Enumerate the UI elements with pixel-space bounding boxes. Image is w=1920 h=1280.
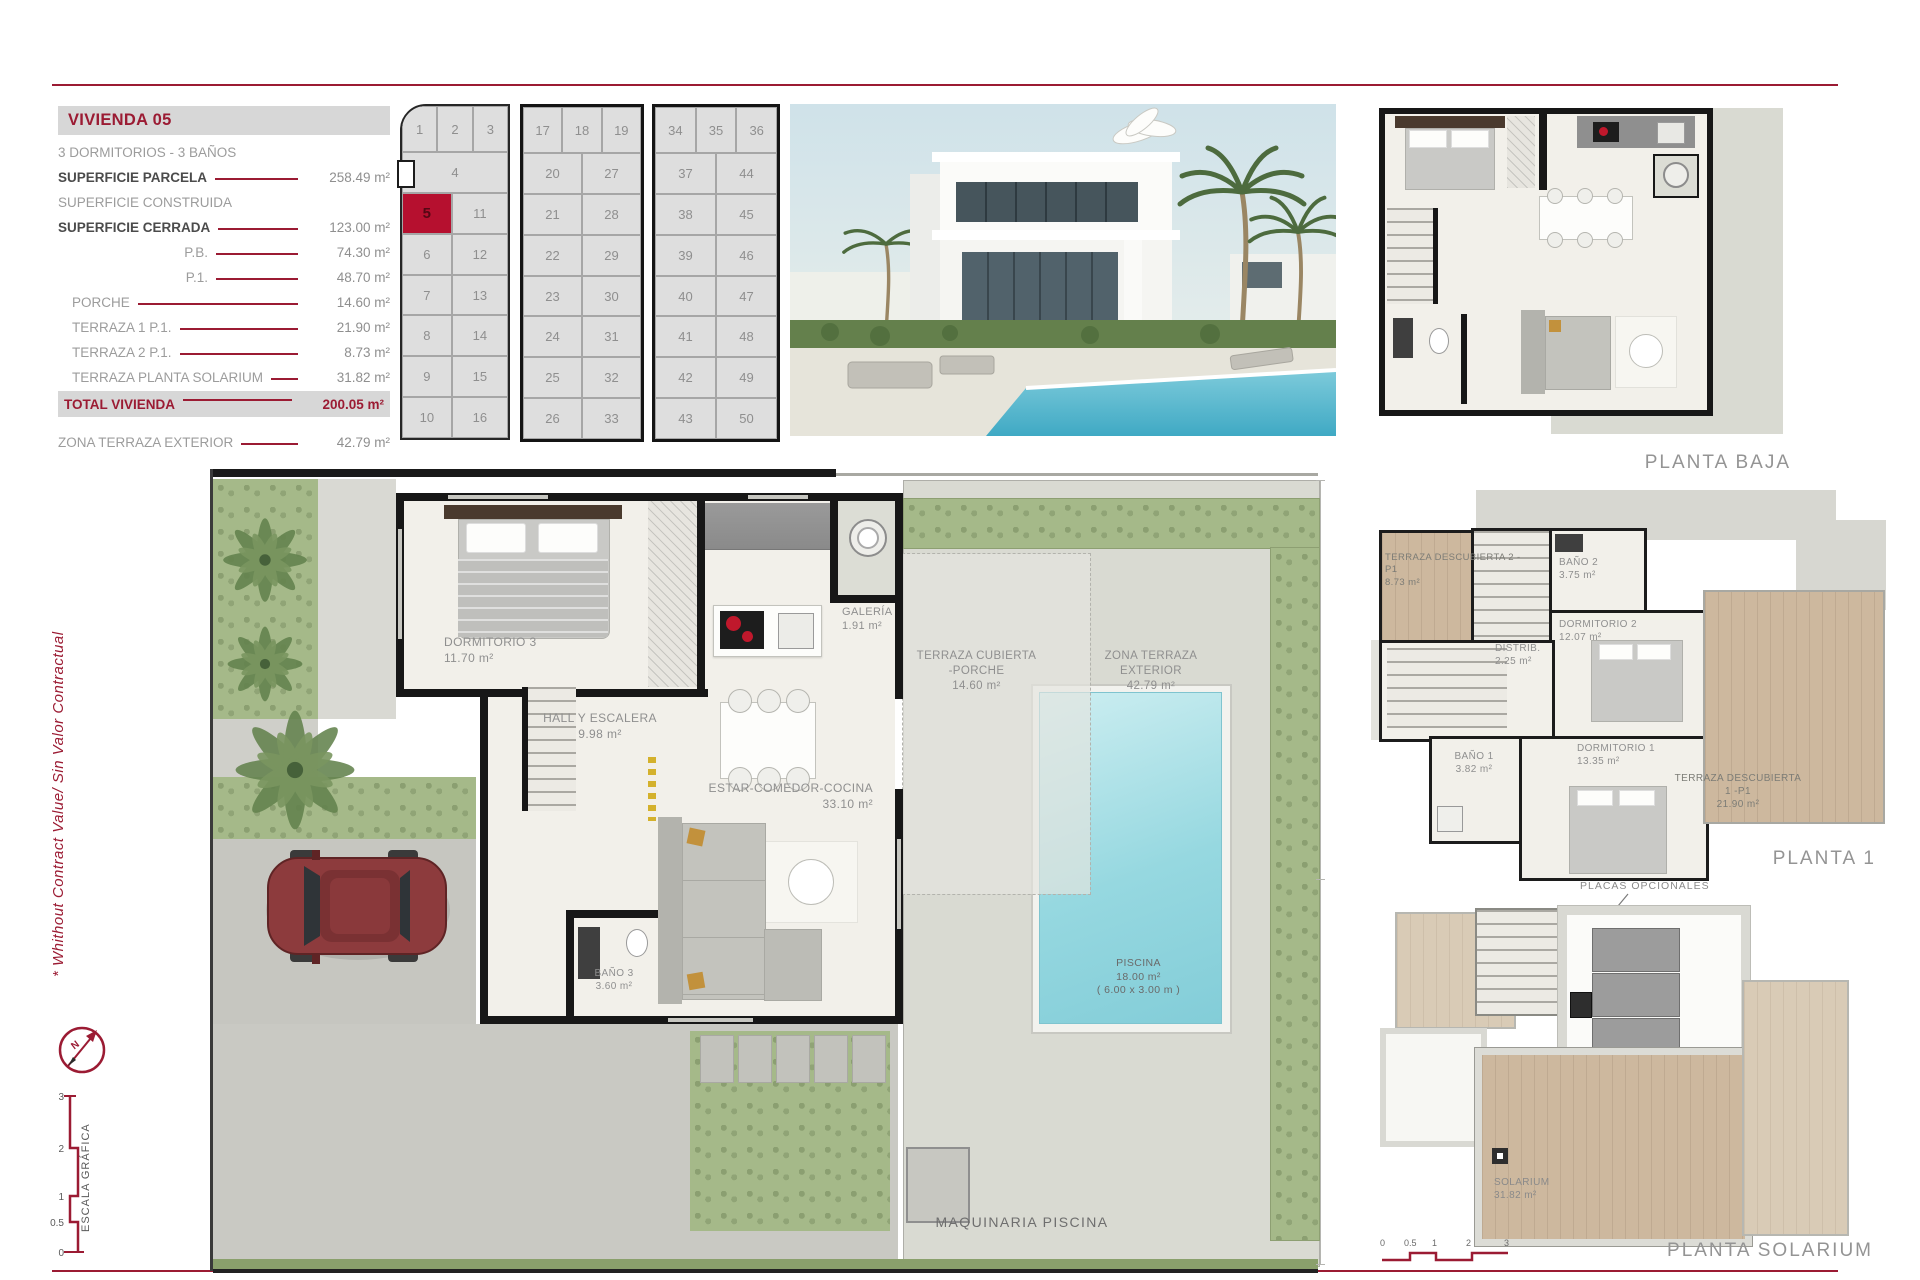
paver	[776, 1035, 810, 1083]
north-compass: N	[52, 1016, 112, 1080]
plot-47: 47	[716, 276, 777, 317]
info-row-label: PORCHE	[58, 295, 130, 310]
side-yard	[318, 479, 396, 719]
pillow	[538, 523, 598, 553]
pb-wc	[1429, 328, 1449, 354]
plot-1: 1	[402, 106, 437, 152]
wall-segment	[830, 501, 838, 599]
info-row-value: 14.60 m²	[306, 295, 390, 310]
terraza2-label: TERRAZA DESCUBIERTA 2 -P1 8.73 m²	[1385, 552, 1523, 589]
pb-coffee-table	[1629, 334, 1663, 368]
window	[897, 839, 901, 929]
sofa-pillow	[687, 972, 706, 991]
plot-17: 17	[523, 107, 562, 153]
plot-26: 26	[523, 398, 582, 439]
room-area: 3.60 m²	[576, 980, 652, 993]
info-row-value: 31.82 m²	[306, 370, 390, 385]
pb-chair	[1577, 188, 1593, 204]
hazard-strip	[648, 757, 656, 821]
hedge-top	[903, 498, 1320, 549]
info-row-label: P.B.	[58, 245, 208, 260]
chair	[728, 689, 752, 713]
plot-24: 24	[523, 316, 582, 357]
plot-30: 30	[582, 276, 641, 317]
villa-photo-art	[790, 104, 1336, 436]
mini-scale-tick: 3	[1504, 1238, 1509, 1248]
room-area: 8.73 m²	[1385, 577, 1523, 589]
washing-machine-drum	[857, 527, 879, 549]
info-row: SUPERFICIE CONSTRUIDA	[58, 186, 390, 210]
mini-scale-tick: 1	[1432, 1238, 1437, 1248]
toilet	[626, 929, 648, 957]
planta-1-label: PLANTA 1	[1773, 848, 1876, 870]
bano1-label: BAÑO 1 3.82 m²	[1439, 750, 1509, 776]
plot-13: 13	[452, 275, 508, 316]
pb-hob-burner	[1599, 127, 1608, 136]
dimension-tick	[1316, 480, 1325, 481]
plot-23: 23	[523, 276, 582, 317]
wardrobe	[648, 501, 697, 687]
pb-bed-headboard	[1395, 116, 1505, 128]
plot-41: 41	[655, 316, 716, 357]
solarium-deck	[1475, 1048, 1752, 1246]
room-name: SOLARIUM	[1494, 1176, 1584, 1189]
porche-label: TERRAZA CUBIERTA -PORCHE 14.60 m²	[914, 649, 1039, 694]
room-area: 1.91 m²	[842, 619, 912, 633]
mini-scale-tick: 0	[1380, 1238, 1385, 1248]
escala-tick: 0	[58, 1248, 64, 1259]
sofa-pillow	[687, 828, 706, 847]
info-row-value: 21.90 m²	[306, 320, 390, 335]
site-block: 3435363744384539464047414842494350	[652, 104, 780, 442]
paver	[738, 1035, 772, 1083]
plot-15: 15	[452, 356, 508, 397]
mini-scale-tick: 0.5	[1404, 1238, 1417, 1248]
pb-bath-fixture	[1393, 318, 1413, 358]
escala-tick: 2	[58, 1144, 64, 1155]
pb-chair	[1607, 232, 1623, 248]
sol-roof-left	[1380, 1028, 1487, 1147]
piscina-label: PISCINA 18.00 m² ( 6.00 x 3.00 m )	[1066, 957, 1211, 998]
info-row: TERRAZA 1 P.1.21.90 m²	[58, 311, 390, 335]
coffee-table	[788, 859, 834, 905]
hall-label: HALL Y ESCALERA 9.98 m²	[536, 711, 664, 742]
porch-overlay	[903, 554, 1090, 894]
room-name: TERRAZA DESCUBIERTA 2 -P1	[1385, 552, 1523, 577]
top-rule	[52, 84, 1838, 86]
bano3-label: BAÑO 3 3.60 m²	[576, 967, 652, 993]
room-area: 14.60 m²	[914, 679, 1039, 694]
pb-sofa	[1521, 310, 1545, 394]
room-name: TERRAZA DESCUBIERTA 1 -P1	[1673, 772, 1803, 798]
wall-segment	[1461, 314, 1467, 404]
planta-1-plan: TERRAZA DESCUBIERTA 2 -P1 8.73 m² BAÑO 2…	[1371, 490, 1886, 875]
pb-wardrobe	[1507, 116, 1535, 188]
hedge-right	[1270, 547, 1320, 1241]
pb-sofa-pillow	[1549, 320, 1561, 332]
maquinaria-box	[906, 1147, 970, 1223]
room-area: 9.98 m²	[536, 727, 664, 743]
bed-headboard	[444, 505, 622, 519]
info-row-value: 48.70 m²	[306, 270, 390, 285]
info-row-value: 123.00 m²	[306, 220, 390, 235]
boundary-wall-bottom	[213, 1269, 1318, 1273]
plot-32: 32	[582, 357, 641, 398]
info-row-label: 3 DORMITORIOS - 3 BAÑOS	[58, 145, 236, 160]
hedge-bottom	[213, 1259, 1318, 1269]
room-area: 18.00 m²	[1066, 971, 1211, 985]
solar-panel	[1592, 928, 1680, 972]
boundary-wall-top	[212, 469, 836, 477]
wall-segment	[566, 910, 574, 1016]
bano2-label: BAÑO 2 3.75 m²	[1559, 556, 1629, 582]
plot-16: 16	[452, 397, 508, 438]
site-plan-grid: 1234511612713814915101617181920272128222…	[400, 104, 774, 436]
total-value: 200.05 m²	[300, 397, 384, 412]
info-row-label: SUPERFICIE CERRADA	[58, 220, 210, 235]
plot-35: 35	[696, 107, 737, 153]
window	[668, 1018, 753, 1022]
plot-34: 34	[655, 107, 696, 153]
plot-18: 18	[562, 107, 601, 153]
escala-tick: 3	[58, 1092, 64, 1103]
leader-line	[216, 253, 298, 255]
total-row: TOTAL VIVIENDA 200.05 m²	[58, 391, 390, 417]
room-name: DORMITORIO 3	[444, 635, 564, 651]
plot-38: 38	[655, 194, 716, 235]
escala-tick: 1	[58, 1192, 64, 1203]
info-row: SUPERFICIE CERRADA123.00 m²	[58, 211, 390, 235]
room-area: 42.79 m²	[1076, 679, 1226, 694]
plot-45: 45	[716, 194, 777, 235]
info-row: SUPERFICIE PARCELA258.49 m²	[58, 161, 390, 185]
plot-25: 25	[523, 357, 582, 398]
room-area: 31.82 m²	[1494, 1189, 1584, 1202]
info-row-value: 74.30 m²	[306, 245, 390, 260]
pb-chair	[1547, 188, 1563, 204]
plan-sheet: VIVIENDA 05 3 DORMITORIOS - 3 BAÑOSSUPER…	[0, 0, 1920, 1280]
dormitorio3-label: DORMITORIO 3 11.70 m²	[444, 635, 564, 666]
info-panel: VIVIENDA 05 3 DORMITORIOS - 3 BAÑOSSUPER…	[58, 106, 390, 450]
info-rows: 3 DORMITORIOS - 3 BAÑOSSUPERFICIE PARCEL…	[58, 136, 390, 385]
info-row: 3 DORMITORIOS - 3 BAÑOS	[58, 136, 390, 160]
info-row: P.1.48.70 m²	[58, 261, 390, 285]
dimension-line	[1320, 480, 1321, 1265]
leader-line	[216, 278, 298, 280]
terraza1-label: TERRAZA DESCUBIERTA 1 -P1 21.90 m²	[1673, 772, 1803, 811]
plot-43: 43	[655, 398, 716, 439]
room-name: HALL Y ESCALERA	[536, 711, 664, 727]
plot-5: 5	[402, 193, 452, 234]
info-row: PORCHE14.60 m²	[58, 286, 390, 310]
plot-21: 21	[523, 194, 582, 235]
plot-36: 36	[736, 107, 777, 153]
info-row-label: P.1.	[58, 270, 208, 285]
plot-44: 44	[716, 153, 777, 194]
sol-vent	[1570, 992, 1592, 1018]
sol-stairs	[1475, 908, 1562, 1016]
leader-line	[215, 178, 298, 180]
leader-line	[138, 303, 298, 305]
car	[260, 844, 456, 975]
villa-title: VIVIENDA 05	[58, 106, 390, 135]
room-name: ZONA TERRAZA EXTERIOR	[1076, 649, 1226, 679]
info-row: TERRAZA 2 P.1.8.73 m²	[58, 336, 390, 360]
info-row-label: TERRAZA 1 P.1.	[58, 320, 172, 335]
planta-baja-label: PLANTA BAJA	[1645, 452, 1791, 474]
room-name: BAÑO 3	[576, 967, 652, 980]
room-name: TERRAZA CUBIERTA -PORCHE	[914, 649, 1039, 679]
pillow	[466, 523, 526, 553]
total-label: TOTAL VIVIENDA	[64, 397, 175, 412]
plot-10: 10	[402, 397, 452, 438]
plot-14: 14	[452, 315, 508, 356]
room-name: ESTAR-COMEDOR-COCINA	[708, 781, 873, 797]
plot-28: 28	[582, 194, 641, 235]
palm-tree	[220, 515, 310, 605]
dorm2-label: DORMITORIO 2 12.07 m²	[1559, 618, 1663, 644]
plot-20: 20	[523, 153, 582, 194]
leader-line	[271, 378, 298, 380]
wall-segment	[480, 689, 488, 1024]
dimension-tick	[1316, 1264, 1325, 1265]
window	[448, 495, 548, 499]
plot-31: 31	[582, 316, 641, 357]
info-row-label: TERRAZA 2 P.1.	[58, 345, 172, 360]
plot-7: 7	[402, 275, 452, 316]
paver	[700, 1035, 734, 1083]
room-area: 3.82 m²	[1439, 763, 1509, 776]
info-row: P.B.74.30 m²	[58, 236, 390, 260]
solar-panel	[1592, 973, 1680, 1017]
room-name: GALERÍA	[842, 605, 912, 619]
sofa-chaise	[764, 929, 822, 1001]
mini-scale-tick: 2	[1466, 1238, 1471, 1248]
p1-bed2-pillow	[1637, 644, 1671, 660]
pb-sink	[1657, 122, 1685, 144]
sol-wood-right	[1742, 980, 1849, 1236]
plot-8: 8	[402, 315, 452, 356]
zona-label: ZONA TERRAZA EXTERIOR 42.79 m²	[1076, 649, 1226, 694]
blanket	[458, 559, 608, 637]
pb-pillow	[1451, 130, 1489, 148]
room-area: 2.25 m²	[1495, 655, 1555, 668]
extra-label: ZONA TERRAZA EXTERIOR	[58, 435, 233, 450]
plot-42: 42	[655, 357, 716, 398]
plot-6: 6	[402, 234, 452, 275]
plot-50: 50	[716, 398, 777, 439]
plot-48: 48	[716, 316, 777, 357]
plot-46: 46	[716, 235, 777, 276]
palm-tree	[230, 705, 360, 835]
room-dim: ( 6.00 x 3.00 m )	[1066, 984, 1211, 998]
plot-39: 39	[655, 235, 716, 276]
galeria-label: GALERÍA 1.91 m²	[842, 605, 912, 634]
dimension-tick	[1316, 879, 1325, 880]
boundary-line-top-right	[836, 473, 1318, 476]
plot-3: 3	[473, 106, 508, 152]
room-area: 21.90 m²	[1673, 798, 1803, 811]
pb-chair	[1607, 188, 1623, 204]
site-block: 1718192027212822292330243125322633	[520, 104, 644, 442]
planta-baja-plan: PLANTA BAJA	[1371, 104, 1791, 476]
plot-4: 4	[402, 152, 508, 193]
chair	[757, 689, 781, 713]
pb-pillow	[1409, 130, 1447, 148]
dorm1-label: DORMITORIO 1 13.35 m²	[1577, 742, 1687, 768]
hob-burner	[742, 631, 753, 642]
planta-solarium-plan: PLACAS OPCIONALES SOLARIUM 31.82 m² 00.5…	[1380, 880, 1885, 1276]
info-row-label: SUPERFICIE PARCELA	[58, 170, 207, 185]
pb-washer	[1663, 162, 1689, 188]
kitchen-counter	[705, 503, 830, 550]
p1-bed2-pillow	[1599, 644, 1633, 660]
p1-landing-treads	[1387, 648, 1507, 728]
plot-11: 11	[452, 193, 508, 234]
p1-bath-fixture	[1437, 806, 1463, 832]
stairs	[528, 687, 576, 811]
leader-line	[218, 228, 298, 230]
site-block: 12345116127138149151016	[400, 104, 510, 440]
sol-drain-dot	[1497, 1153, 1503, 1159]
room-area: 13.35 m²	[1577, 755, 1687, 768]
info-row-value: 258.49 m²	[306, 170, 390, 185]
plot-29: 29	[582, 235, 641, 276]
planta-solarium-label: PLANTA SOLARIUM	[1667, 1240, 1873, 1262]
p1-bed1-pillow	[1577, 790, 1613, 806]
leader-line	[183, 399, 292, 401]
plot-entrance-notch	[397, 160, 415, 188]
palm-tree	[220, 619, 310, 709]
maquinaria-label: MAQUINARIA PISCINA	[922, 1213, 1122, 1231]
extra-value: 42.79 m²	[306, 435, 390, 450]
info-row-label: SUPERFICIE CONSTRUIDA	[58, 195, 232, 210]
sofa-back	[658, 817, 682, 1004]
info-row: TERRAZA PLANTA SOLARIUM31.82 m²	[58, 361, 390, 385]
window	[748, 495, 808, 499]
distrib-label: DISTRIB. 2.25 m²	[1495, 642, 1555, 668]
wall-segment	[697, 501, 705, 689]
extra-row: ZONA TERRAZA EXTERIOR 42.79 m²	[58, 426, 390, 450]
escala-tick: 0.5	[50, 1218, 64, 1229]
chair	[786, 689, 810, 713]
plot-2: 2	[437, 106, 472, 152]
plot-33: 33	[582, 398, 641, 439]
paver	[852, 1035, 886, 1083]
pb-chair	[1577, 232, 1593, 248]
hob	[720, 611, 764, 649]
escala-label: ESCALA GRÁFICA	[80, 1093, 92, 1263]
leader-line	[241, 443, 298, 445]
graphic-scale: ESCALA GRÁFICA 00.5123	[40, 1085, 110, 1270]
plot-27: 27	[582, 153, 641, 194]
room-area: 11.70 m²	[444, 651, 564, 667]
hob-burner	[726, 616, 741, 631]
p1-bed1-pillow	[1619, 790, 1655, 806]
estar-label: ESTAR-COMEDOR-COCINA 33.10 m²	[708, 781, 873, 812]
mini-scale-bar: 00.5123	[1380, 1238, 1530, 1264]
villa-photo	[790, 104, 1336, 436]
info-row-label: TERRAZA PLANTA SOLARIUM	[58, 370, 263, 385]
p1-bath-fixture	[1555, 534, 1583, 552]
sink	[778, 613, 814, 649]
wall-segment	[830, 595, 903, 603]
room-name: DISTRIB.	[1495, 642, 1555, 655]
room-name: PISCINA	[1066, 957, 1211, 971]
plot-12: 12	[452, 234, 508, 275]
room-name: DORMITORIO 2	[1559, 618, 1663, 631]
wall-segment	[566, 910, 658, 918]
solarium-label: SOLARIUM 31.82 m²	[1494, 1176, 1584, 1202]
contract-disclaimer: * Whithout Contract Value/ Sin Valor Con…	[50, 608, 84, 1000]
room-name: BAÑO 1	[1439, 750, 1509, 763]
room-area: 12.07 m²	[1559, 631, 1663, 644]
maquinaria-text: MAQUINARIA PISCINA	[922, 1213, 1122, 1231]
wall-segment	[1539, 114, 1547, 190]
room-area: 33.10 m²	[708, 797, 873, 813]
plot-19: 19	[602, 107, 641, 153]
pb-stairs	[1387, 208, 1438, 304]
room-area: 3.75 m²	[1559, 569, 1629, 582]
room-name: BAÑO 2	[1559, 556, 1629, 569]
plot-37: 37	[655, 153, 716, 194]
plot-9: 9	[402, 356, 452, 397]
main-plan: PISCINA 18.00 m² ( 6.00 x 3.00 m ) MAQUI…	[208, 459, 1323, 1279]
paver	[814, 1035, 848, 1083]
plot-22: 22	[523, 235, 582, 276]
plot-40: 40	[655, 276, 716, 317]
plot-49: 49	[716, 357, 777, 398]
leader-line	[180, 353, 298, 355]
pb-chair	[1547, 232, 1563, 248]
window	[398, 529, 402, 639]
room-name: DORMITORIO 1	[1577, 742, 1687, 755]
leader-line	[180, 328, 298, 330]
info-row-value: 8.73 m²	[306, 345, 390, 360]
